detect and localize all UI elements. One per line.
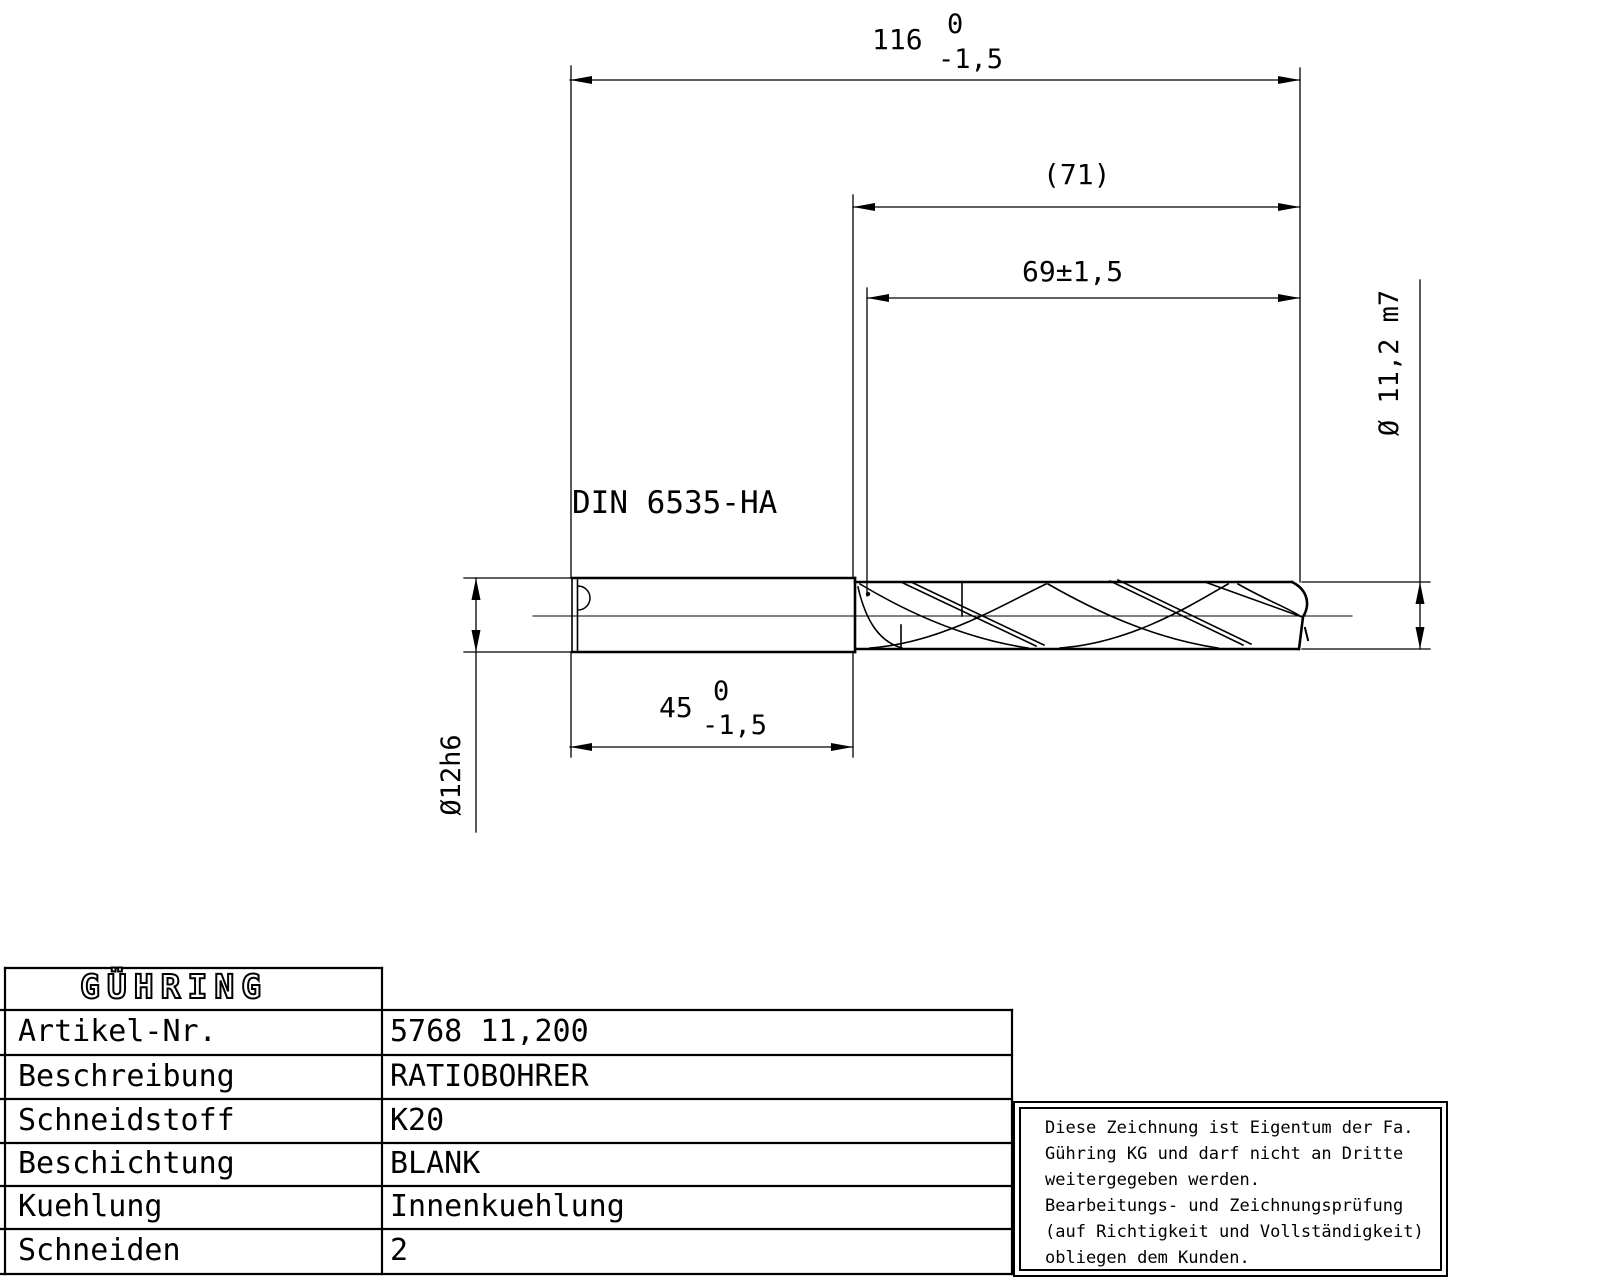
titleblock-label-kuehlung: Kuehlung	[18, 1189, 163, 1225]
dim-shank-length: 45	[659, 693, 693, 722]
dim-overall-tol-lower: -1,5	[938, 46, 1003, 74]
titleblock-value-kuehlung: Innenkuehlung	[390, 1189, 625, 1225]
titleblock-label-schneidstoff: Schneidstoff	[18, 1103, 235, 1139]
dim-overall-tol-upper: 0	[947, 11, 963, 39]
guehring-logo: GÜHRING	[80, 970, 268, 1005]
notice-line: Gühring KG und darf nicht an Dritte	[1045, 1141, 1403, 1167]
label-cutting-diameter: Ø 11,2 m7	[1376, 290, 1404, 436]
dim-shank-tol-lower: -1,5	[702, 712, 767, 740]
titleblock-value-beschichtung: BLANK	[390, 1146, 480, 1182]
titleblock-label-artikel: Artikel-Nr.	[18, 1014, 217, 1050]
dim-flute-length-ref: (71)	[1043, 160, 1110, 189]
notice-line: Bearbeitungs- und Zeichnungsprüfung	[1045, 1193, 1403, 1219]
label-shank-diameter: Ø12h6	[438, 734, 466, 815]
titleblock-label-beschichtung: Beschichtung	[18, 1146, 235, 1182]
titleblock-value-beschreibung: RATIOBOHRER	[390, 1059, 589, 1095]
technical-drawing-page: { "colors": { "ink": "#000000", "paper":…	[0, 0, 1600, 1280]
dim-overall-length: 116	[872, 25, 923, 54]
notice-line: Diese Zeichnung ist Eigentum der Fa.	[1045, 1115, 1413, 1141]
dim-flute-length: 69±1,5	[1022, 257, 1123, 286]
titleblock-label-beschreibung: Beschreibung	[18, 1059, 235, 1095]
titleblock-value-schneidstoff: K20	[390, 1103, 444, 1139]
label-shank-standard: DIN 6535-HA	[572, 487, 777, 520]
notice-line: (auf Richtigkeit und Vollständigkeit)	[1045, 1219, 1424, 1245]
notice-line: weitergegeben werden.	[1045, 1167, 1260, 1193]
titleblock-value-artikel: 5768 11,200	[390, 1014, 589, 1050]
notice-line: obliegen dem Kunden.	[1045, 1245, 1250, 1271]
dim-shank-tol-upper: 0	[713, 678, 729, 706]
titleblock-value-schneiden: 2	[390, 1233, 408, 1269]
titleblock-label-schneiden: Schneiden	[18, 1233, 181, 1269]
drawing-linework	[0, 0, 1600, 1280]
